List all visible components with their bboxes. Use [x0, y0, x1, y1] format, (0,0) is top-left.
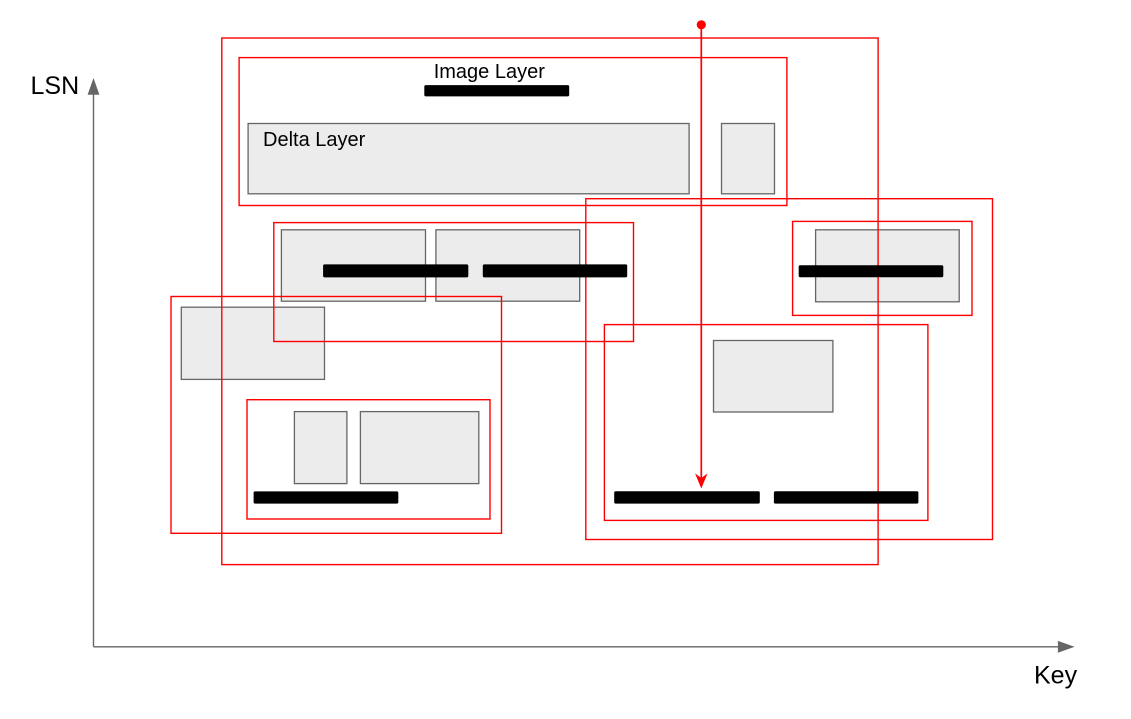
svg-text:Delta Layer: Delta Layer: [263, 129, 366, 151]
svg-text:Key: Key: [1034, 662, 1078, 690]
svg-text:Image Layer: Image Layer: [434, 61, 546, 83]
svg-text:LSN: LSN: [31, 72, 80, 100]
